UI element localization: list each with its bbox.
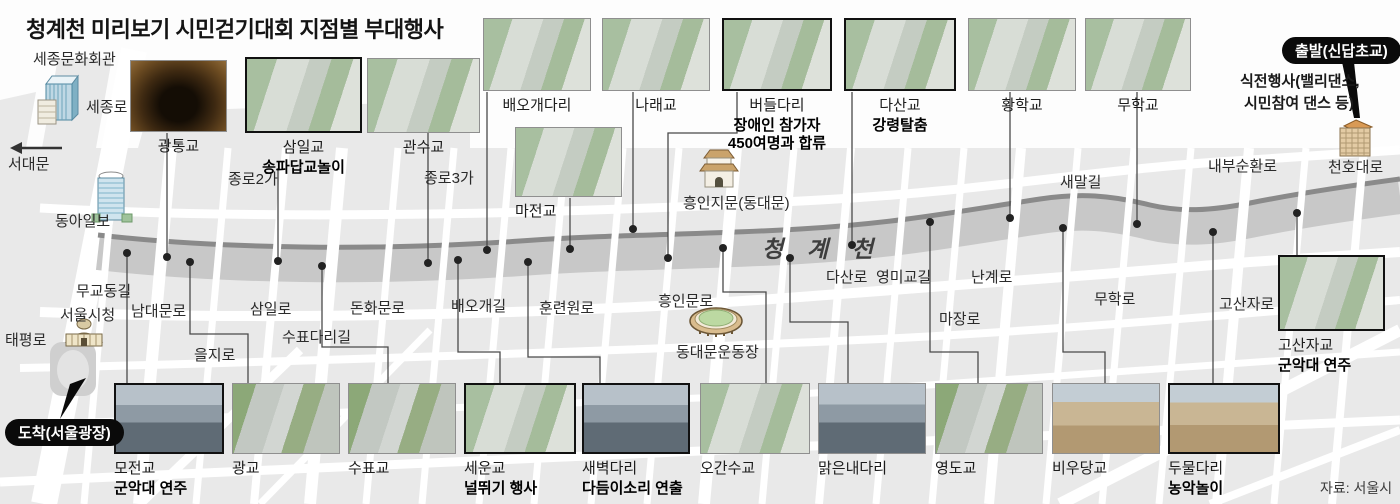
spot-malgeunnaedari: 맑은내다리: [818, 383, 926, 477]
sejong-center-icon: [38, 76, 78, 124]
photo-saebyeokdari: [582, 383, 690, 454]
photo-mojeongyo: [114, 383, 224, 454]
infographic-canvas: 청계천 미리보기 시민걷기대회 지점별 부대행사 세종문화회관 세종로 서대문 …: [0, 0, 1400, 504]
photo-baeogaedari: [483, 18, 591, 91]
label-taepyeongno: 태평로: [5, 329, 46, 350]
photo-gwangtonggyo: [130, 60, 227, 132]
bridge-label: 광교: [232, 460, 340, 477]
photo-supyogyo: [348, 383, 456, 454]
photo-dumuldari: [1168, 383, 1280, 454]
road-label-donhwamunno: 돈화문로: [350, 297, 405, 318]
spot-hwanghakgyo: 황학교: [968, 18, 1076, 114]
road-label-samilro: 삼일로: [250, 298, 291, 319]
photo-malgeunnaedari: [818, 383, 926, 454]
photo-ogansugyo: [700, 383, 810, 454]
cheonho-building-icon: [1340, 120, 1372, 156]
bridge-label: 마전교: [515, 203, 622, 220]
bridge-label: 새벽다리: [582, 460, 690, 477]
spot-gwangtonggyo: 광통교: [130, 60, 227, 155]
road-label-muhakro: 무학로: [1094, 288, 1135, 309]
photo-beodeuldari: [722, 18, 832, 91]
bridge-event: 다듬이소리 연출: [582, 480, 690, 498]
road-label-baeogae: 배오개길: [451, 295, 506, 316]
spot-gosanjagyo: 고산자교 군악대 연주: [1278, 255, 1385, 375]
label-city-hall: 서울시청: [60, 304, 115, 325]
bridge-label: 수표교: [348, 460, 456, 477]
road-label-saemalgil: 새말길: [1060, 171, 1101, 192]
spot-naraegyo: 나래교: [602, 18, 710, 114]
spot-supyogyo: 수표교: [348, 383, 456, 477]
spot-biudanggyo: 비우당교: [1052, 383, 1160, 477]
road-label-heunginmunno: 흥인문로: [658, 290, 713, 311]
spot-baeogaedari: 배오개다리: [483, 18, 591, 114]
photo-samilgyo: [245, 57, 362, 133]
spot-dasangyo: 다산교 강령탈춤: [844, 18, 956, 135]
spot-gwanggyo: 광교: [232, 383, 340, 477]
bridge-event: 농악놀이: [1168, 480, 1280, 498]
heunginjimun-gate-icon: [700, 150, 738, 187]
photo-gosanjagyo: [1278, 255, 1385, 331]
bridge-event: 군악대 연주: [114, 480, 224, 498]
bridge-label: 모전교: [114, 460, 224, 477]
road-label-naebusunhwanno: 내부순환로: [1208, 155, 1277, 176]
road-label-namdaemunno: 남대문로: [131, 300, 186, 321]
spot-seungyo: 세운교 널뛰기 행사: [464, 383, 576, 498]
label-ddm-stadium: 동대문운동장: [676, 341, 759, 362]
road-label-majangro: 마장로: [939, 308, 980, 329]
road-label-jongno3ga: 종로3가: [424, 167, 474, 188]
road-label-yeongmigyo: 영미교길: [876, 266, 931, 287]
road-label-euljiro: 을지로: [194, 344, 235, 365]
spot-saebyeokdari: 새벽다리 다듬이소리 연출: [582, 383, 690, 498]
start-event-note-line1: 식전행사(밸리댄스,: [1240, 70, 1360, 91]
photo-gwanggyo: [232, 383, 340, 454]
bridge-label: 두물다리: [1168, 460, 1280, 477]
photo-gwansugyo: [367, 58, 480, 133]
bridge-event: 송파답교놀이: [222, 159, 386, 177]
photo-naraegyo: [602, 18, 710, 91]
bridge-label: 세운교: [464, 460, 576, 477]
road-label-hullyeonwonno: 훈련원로: [539, 297, 594, 318]
photo-muhakgyo: [1085, 18, 1191, 91]
road-label-gosanjaro: 고산자로: [1219, 293, 1274, 314]
spot-dumuldari: 두물다리 농악놀이: [1168, 383, 1280, 498]
finish-badge: 도착(서울광장): [5, 419, 124, 446]
bridge-label: 비우당교: [1052, 460, 1160, 477]
bridge-event: 널뛰기 행사: [464, 480, 576, 498]
spot-samilgyo: 삼일교 송파답교놀이: [245, 57, 362, 177]
source-credit: 자료: 서울시: [1320, 478, 1392, 498]
spot-yeongdogyo: 영도교: [935, 383, 1043, 477]
bridge-label: 고산자교: [1278, 337, 1385, 354]
start-badge: 출발(신답초교): [1282, 37, 1400, 64]
label-sejongno: 세종로: [86, 96, 127, 117]
spot-mojeongyo: 모전교 군악대 연주: [114, 383, 224, 498]
bridge-label: 영도교: [935, 460, 1043, 477]
photo-hwanghakgyo: [968, 18, 1076, 91]
road-label-mugyodong: 무교동길: [76, 280, 131, 301]
spot-beodeuldari: 버들다리 장애인 참가자 450여명과 합류: [722, 18, 832, 153]
label-cheonhodaero: 천호대로: [1328, 156, 1383, 177]
bridge-label: 맑은내다리: [818, 460, 926, 477]
label-sejong-center: 세종문화회관: [33, 48, 116, 69]
photo-dasangyo: [844, 18, 956, 91]
photo-majeongyo: [515, 127, 622, 197]
spot-ogansugyo: 오간수교: [700, 383, 810, 477]
bridge-label: 관수교: [344, 139, 502, 156]
road-label-supyodari: 수표다리길: [282, 326, 351, 347]
bridge-event: 군악대 연주: [1278, 357, 1385, 375]
start-event-note-line2: 시민참여 댄스 등): [1244, 92, 1354, 113]
spot-majeongyo: 마전교: [515, 127, 622, 220]
bridge-label: 오간수교: [700, 460, 810, 477]
road-label-nangyero: 난계로: [971, 266, 1012, 287]
page-title: 청계천 미리보기 시민걷기대회 지점별 부대행사: [26, 12, 443, 44]
label-donga-ilbo: 동아일보: [55, 210, 110, 231]
stream-name-label: 청 계 천: [762, 230, 882, 264]
photo-seungyo: [464, 383, 576, 454]
photo-yeongdogyo: [935, 383, 1043, 454]
label-seodaemun: 서대문: [8, 153, 49, 174]
road-label-dasanro: 다산로: [826, 266, 867, 287]
photo-biudanggyo: [1052, 383, 1160, 454]
spot-muhakgyo: 무학교: [1085, 18, 1191, 114]
label-heunginjimun: 흥인지문(동대문): [683, 192, 790, 213]
bridge-event: 강령탈춤: [822, 117, 979, 135]
bridge-label: 무학교: [1064, 97, 1212, 114]
